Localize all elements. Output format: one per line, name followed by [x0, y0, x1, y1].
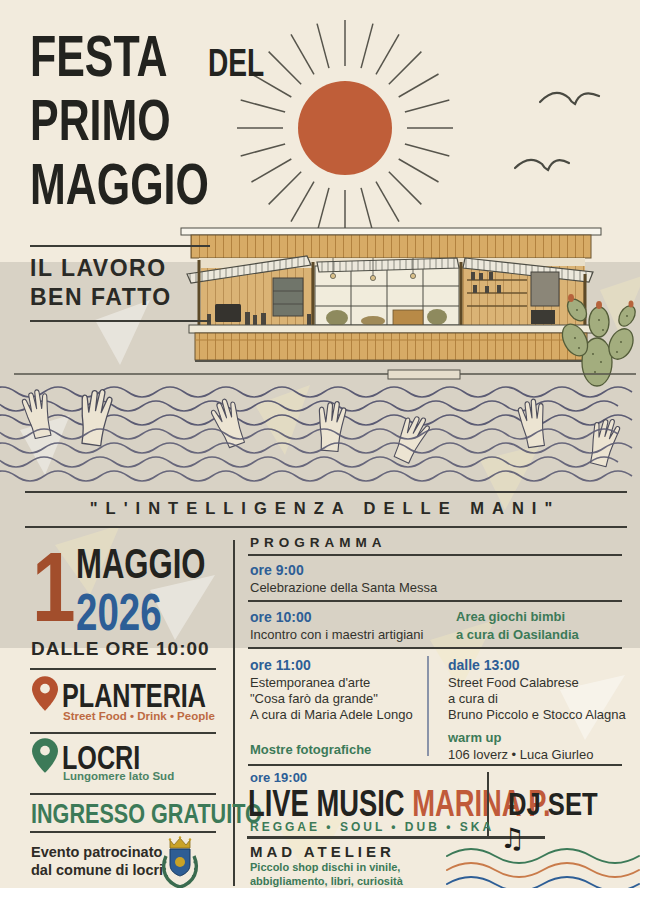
start-time: DALLE ORE 10:00 [31, 638, 210, 660]
wavy-lines-decoration [445, 840, 640, 892]
kiosk-illustration [175, 222, 607, 364]
program-rule-4 [248, 764, 622, 766]
seagulls-illustration [505, 80, 645, 185]
title-maggio: MAGGIO [30, 150, 209, 217]
poster-title: FESTA DEL PRIMO MAGGIO [30, 22, 284, 214]
venue-rule-top [30, 668, 216, 670]
slot2-text: Incontro con i maestri artigiani [250, 627, 423, 643]
slot3-green: Mostre fotografiche [250, 742, 371, 758]
slot4-green: warm up [448, 730, 501, 746]
atelier-line1: Piccolo shop dischi in vinile, [250, 861, 403, 875]
city-rule-top [30, 732, 216, 734]
program-rule-2 [248, 600, 622, 602]
slot2-time: ore 10:00 [250, 609, 311, 625]
tagline-rule-top [30, 245, 210, 247]
tagline-line1: IL LAVORO [30, 254, 172, 283]
title-del: DEL [208, 42, 264, 85]
slot4-time: dalle 13:00 [448, 657, 520, 673]
program-rule-3 [248, 647, 622, 649]
slot4-line4: 106 loverz • Luca Giurleo [448, 747, 593, 763]
city-pin-icon [32, 738, 58, 773]
page-edge-right [640, 0, 650, 898]
admission-rule-bottom [30, 831, 216, 833]
slot3-line3: A cura di Maria Adele Longo [250, 707, 413, 723]
page-edge-bottom [0, 888, 650, 898]
slot3-time: ore 11:00 [250, 657, 311, 673]
slot-divider [427, 656, 429, 756]
atelier-title: MAD ATELIER [250, 843, 395, 860]
music-note-icon: ♫ [500, 822, 525, 855]
slot3-line2: "Cosa farò da grande" [250, 691, 378, 707]
program-header: PROGRAMMA [250, 535, 387, 550]
program-rule-1 [248, 554, 622, 556]
poster: FESTA DEL PRIMO MAGGIO IL LAVORO BEN FAT… [0, 0, 650, 898]
admission-text: INGRESSO GRATUITO [31, 799, 262, 830]
tagline-line2: BEN FATTO [30, 283, 172, 312]
date-month: MAGGIO [76, 540, 206, 588]
date-day: 1 [32, 531, 76, 644]
slot4-line2: a cura di [448, 691, 498, 707]
title-festa: FESTA [30, 22, 168, 89]
tagline: IL LAVORO BEN FATTO [30, 254, 172, 312]
slot2-side1: Area giochi bimbi [456, 609, 565, 625]
slot4-line1: Street Food Calabrese [448, 675, 579, 691]
admission-rule-top [30, 793, 216, 795]
slot1-text: Celebrazione della Santa Messa [250, 580, 437, 596]
atelier-line2: abbigliamento, libri, curiosità [250, 875, 403, 889]
genres-text: REGGAE • SOUL • DUB • SKA [250, 820, 494, 834]
live-music-title: LIVE MUSIC [248, 783, 405, 824]
slot3-line1: Estemporanea d'arte [250, 675, 370, 691]
slot4-line3: Bruno Piccolo e Stocco Alagna [448, 707, 626, 723]
date-year: 2026 [76, 582, 162, 642]
quote-rule-bottom [25, 526, 627, 528]
patronage-line2: dal comune di locri [31, 861, 163, 879]
title-primo: PRIMO [30, 86, 171, 153]
dj-set-title: DJ SET [508, 786, 598, 823]
venue-pin-icon [32, 676, 58, 711]
patronage-text: Evento patrocinato dal comune di locri [31, 843, 163, 879]
venue-tagline: Street Food • Drink • People [63, 710, 215, 722]
quote-rule-top [25, 491, 627, 493]
slot2-side2: a cura di Oasilandia [456, 627, 579, 643]
slot1-time: ore 9:00 [250, 562, 304, 578]
quote-text: "L'INTELLIGENZA DELLE MANI" [0, 499, 650, 518]
city-tagline: Lungomere lato Sud [63, 770, 174, 782]
waves-hands-illustration [0, 368, 650, 488]
patronage-line1: Evento patrocinato [31, 843, 163, 861]
tagline-rule-bottom [30, 320, 210, 322]
municipality-crest [158, 836, 202, 890]
